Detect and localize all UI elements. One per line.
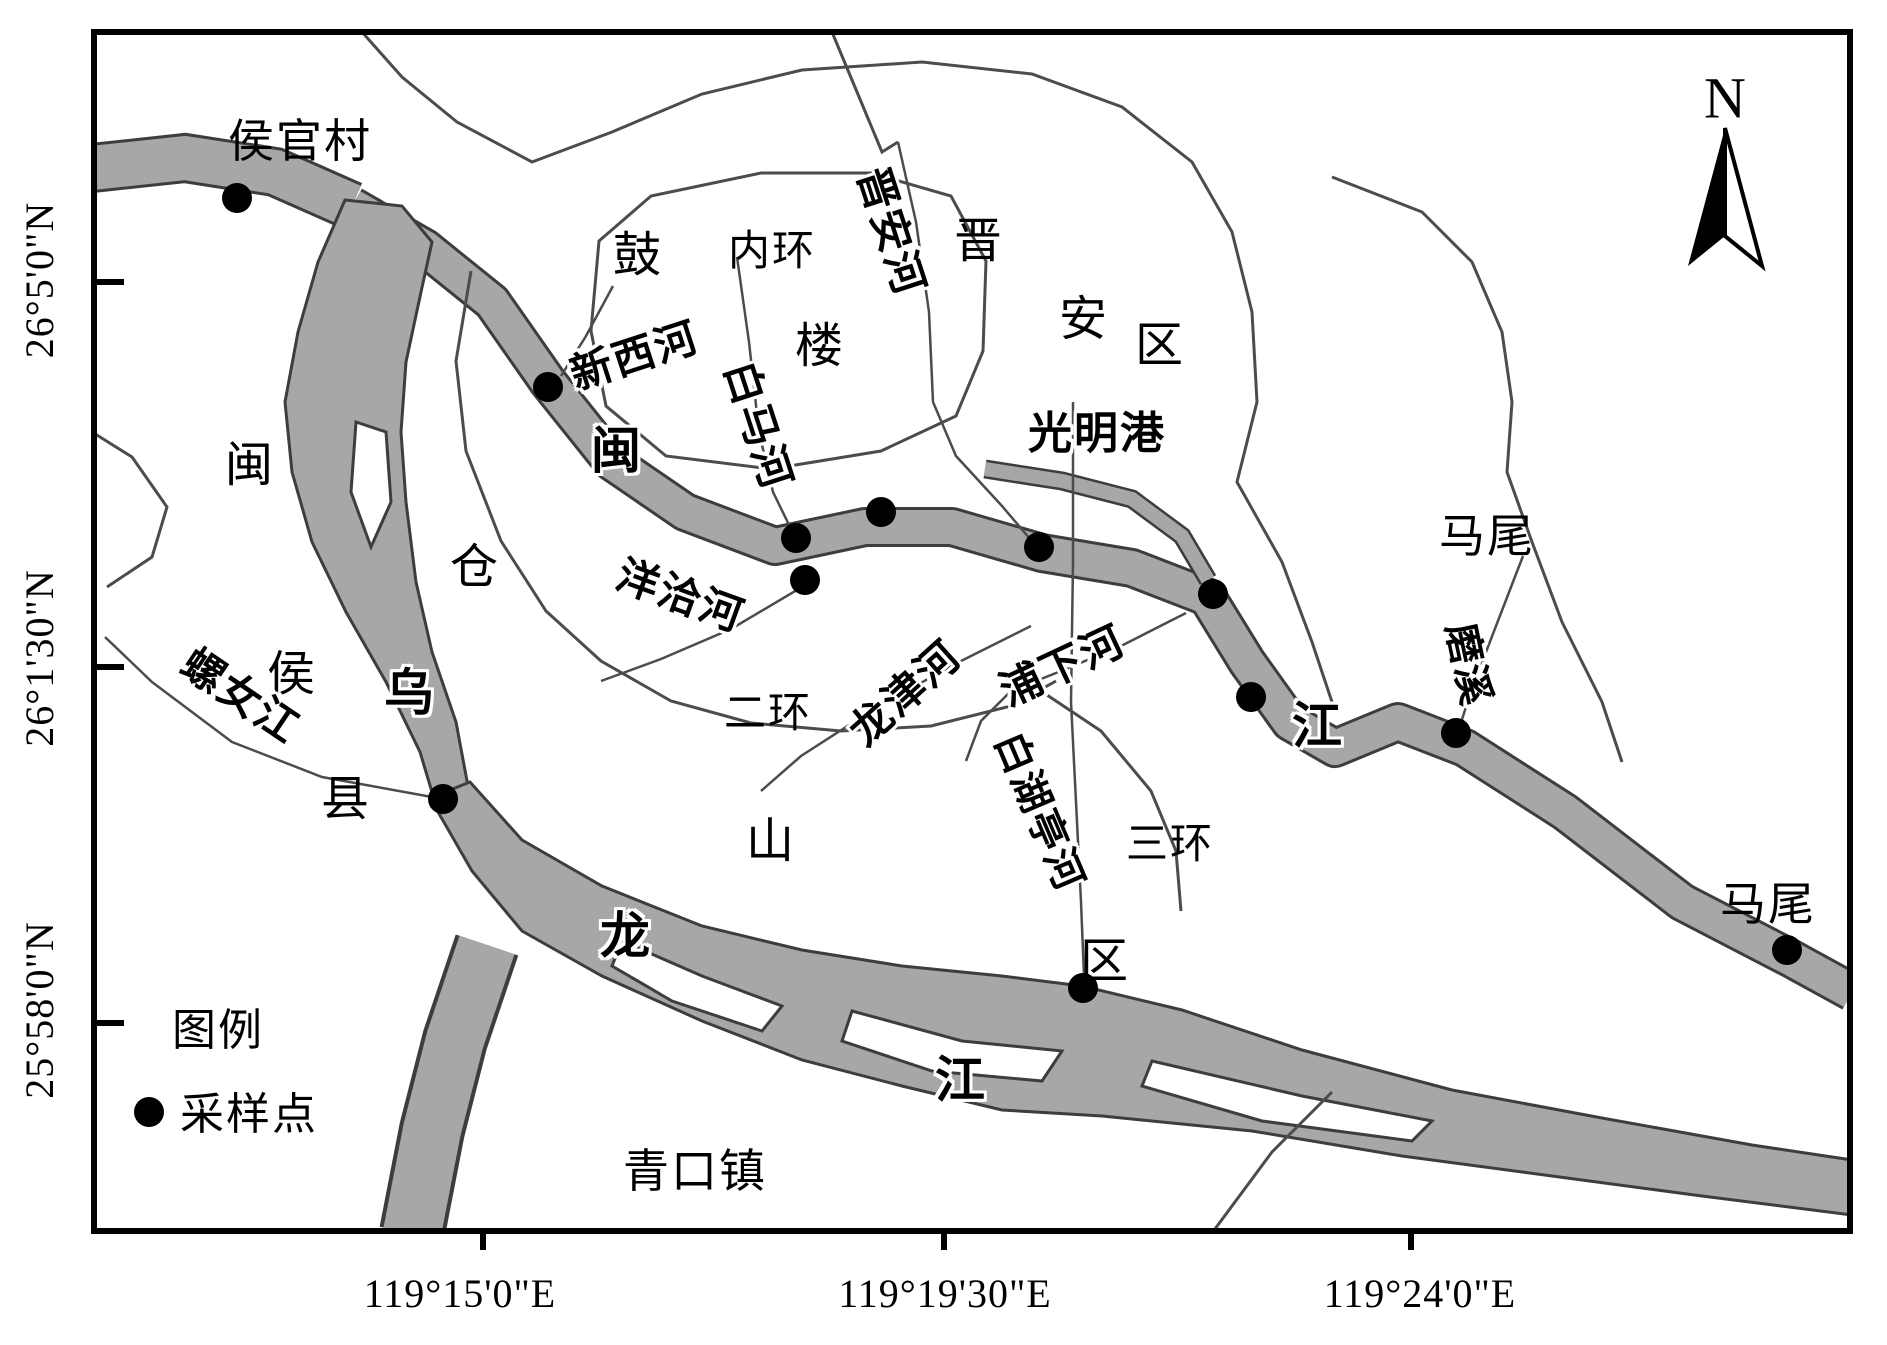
- label-overlay: N 图例 采样点 侯官村鼓楼内环晋安区光明港马尾闽侯县仓山区二环三环青口镇马尾闽…: [0, 0, 1887, 1345]
- map-label-wulongjiang-long: 龙: [600, 911, 652, 961]
- map-label-moxi-river: 磨溪: [1440, 620, 1497, 710]
- map-label-xinxi-river: 新西河: [566, 317, 705, 398]
- map-label-jinan-river: 晋安河: [850, 163, 931, 302]
- map-label-jinan-district-an: 安: [1059, 296, 1109, 344]
- map-label-baihuting-river: 白湖亭河: [988, 727, 1090, 897]
- map-label-houguan-village: 侯官村: [228, 119, 372, 165]
- map-label-guangming-port: 光明港: [1028, 412, 1166, 456]
- map-label-minjiang-min: 闽: [591, 426, 643, 476]
- map-label-second-ring: 二环: [724, 693, 812, 735]
- legend-title: 图例: [172, 994, 264, 1058]
- map-label-cangshan-shan: 山: [746, 818, 796, 866]
- map-label-cangshan-cang: 仓: [450, 544, 500, 592]
- map-label-gulou-lou: 楼: [795, 323, 845, 371]
- map-label-puxia-river: 浦下河: [994, 620, 1131, 714]
- map-label-yangqia-river: 洋洽河: [611, 555, 749, 640]
- map-label-inner-ring: 内环: [728, 231, 816, 273]
- map-label-cangshan-qu: 区: [1080, 938, 1130, 986]
- axis-latitude-label-2: 25°58'0"N: [20, 921, 60, 1098]
- axis-longitude-label-1: 119°19'30"E: [838, 1274, 1051, 1314]
- map-label-wulongjiang-jiang: 江: [935, 1055, 987, 1105]
- map-label-gulou-gu: 鼓: [613, 232, 663, 280]
- map-label-mawei-district: 马尾: [1439, 514, 1535, 560]
- map-label-minhou-min: 闽: [225, 442, 275, 490]
- map-label-third-ring: 三环: [1126, 824, 1214, 866]
- map-label-minhou-xian: 县: [321, 776, 371, 824]
- map-label-longjin-river: 龙津河: [843, 634, 969, 754]
- axis-longitude-label-0: 119°15'0"E: [364, 1274, 556, 1314]
- axis-latitude-label-1: 26°1'30"N: [20, 569, 60, 746]
- axis-longitude-label-2: 119°24'0"E: [1324, 1274, 1516, 1314]
- map-label-mawei-town: 马尾: [1720, 882, 1816, 928]
- map-label-jinan-district-jin: 晋: [954, 218, 1004, 266]
- map-figure: N 图例 采样点 侯官村鼓楼内环晋安区光明港马尾闽侯县仓山区二环三环青口镇马尾闽…: [0, 0, 1887, 1345]
- map-label-minjiang-jiang: 江: [1292, 701, 1344, 751]
- legend-sample-point-label: 采样点: [180, 1078, 318, 1142]
- north-arrow-label: N: [1704, 65, 1746, 132]
- axis-latitude-label-0: 26°5'0"N: [20, 202, 60, 358]
- map-label-wulongjiang-wu: 乌: [384, 668, 436, 718]
- map-label-baima-river: 白马河: [717, 357, 798, 496]
- map-label-jinan-district-qu: 区: [1135, 322, 1185, 370]
- map-label-qingkou-town: 青口镇: [623, 1149, 767, 1195]
